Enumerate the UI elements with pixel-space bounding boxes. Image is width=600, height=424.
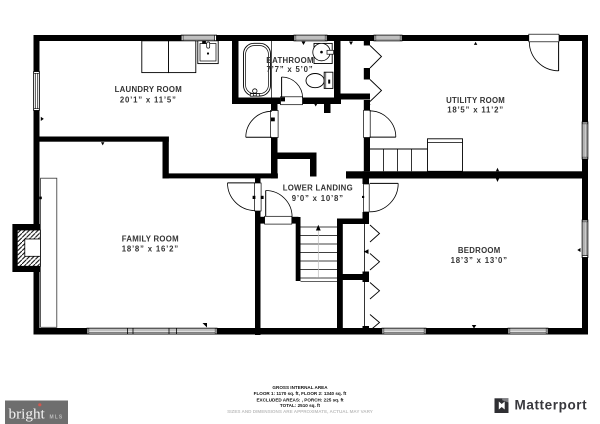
svg-text:BATHROOM: BATHROOM (266, 56, 314, 65)
svg-text:18’8” x 16’2”: 18’8” x 16’2” (122, 244, 179, 253)
svg-text:LOWER LANDING: LOWER LANDING (283, 184, 353, 193)
svg-text:MLS: MLS (50, 414, 64, 420)
svg-text:GROSS INTERNAL AREA: GROSS INTERNAL AREA (272, 385, 328, 390)
svg-text:18’3” x 13’0”: 18’3” x 13’0” (451, 256, 508, 265)
svg-text:Matterport: Matterport (515, 398, 588, 413)
svg-text:FAMILY ROOM: FAMILY ROOM (122, 235, 179, 244)
svg-text:TOTAL: 2510 sq. ft: TOTAL: 2510 sq. ft (280, 403, 321, 408)
svg-text:BEDROOM: BEDROOM (458, 246, 501, 255)
svg-text:FLOOR 1: 1170 sq. ft, FLOOR 2:: FLOOR 1: 1170 sq. ft, FLOOR 2: 1340 sq. … (254, 391, 347, 396)
svg-text:SIZES AND DIMENSIONS ARE APPRO: SIZES AND DIMENSIONS ARE APPROXIMATE, AC… (227, 409, 373, 414)
svg-text:EXCLUDED AREAS: , PORCH: 225 s: EXCLUDED AREAS: , PORCH: 225 sq. ft (256, 397, 344, 402)
svg-text:LAUNDRY ROOM: LAUNDRY ROOM (115, 85, 182, 94)
svg-text:9’0” x 10’8”: 9’0” x 10’8” (292, 194, 344, 203)
svg-text:7’7” x 5’0”: 7’7” x 5’0” (267, 65, 314, 74)
svg-text:UTILITY ROOM: UTILITY ROOM (446, 96, 505, 105)
svg-text:bright: bright (9, 406, 46, 423)
svg-text:20’1” x 11’5”: 20’1” x 11’5” (120, 95, 177, 104)
svg-text:18’5” x 11’2”: 18’5” x 11’2” (447, 106, 504, 115)
